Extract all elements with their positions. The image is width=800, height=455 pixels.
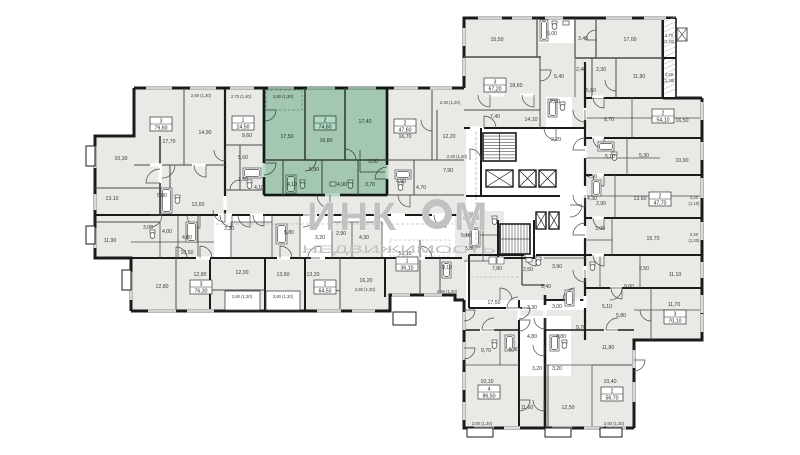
svg-text:11,90: 11,90 [104, 238, 117, 244]
svg-text:10,90: 10,90 [676, 158, 689, 164]
svg-text:64,50: 64,50 [319, 289, 332, 295]
svg-text:3,00: 3,00 [143, 225, 153, 231]
svg-text:12,50: 12,50 [562, 405, 575, 411]
svg-text:2,60 (1,30): 2,60 (1,30) [191, 93, 212, 98]
svg-text:17,70: 17,70 [163, 139, 176, 145]
svg-text:НЕДВИЖИМОСТЬ: НЕДВИЖИМОСТЬ [302, 244, 496, 256]
svg-text:13,60: 13,60 [277, 272, 290, 278]
svg-text:14,90: 14,90 [199, 130, 212, 136]
svg-text:12,60: 12,60 [192, 202, 205, 208]
svg-text:9,60: 9,60 [242, 133, 252, 139]
svg-text:3,30: 3,30 [527, 305, 537, 311]
svg-text:11,90: 11,90 [633, 74, 646, 80]
svg-text:16,20: 16,20 [360, 278, 373, 284]
svg-text:4,80: 4,80 [556, 334, 566, 340]
svg-text:24,50: 24,50 [237, 125, 250, 131]
svg-text:3,20: 3,20 [552, 366, 562, 372]
svg-text:2,70: 2,70 [665, 33, 674, 38]
svg-text:3,00: 3,00 [552, 304, 562, 310]
svg-text:4,80: 4,80 [527, 334, 537, 340]
svg-text:3,20: 3,20 [532, 366, 542, 372]
svg-text:5,40: 5,40 [541, 284, 551, 290]
svg-text:4,70: 4,70 [416, 185, 426, 191]
svg-text:3,00: 3,00 [595, 226, 605, 232]
svg-text:2,20: 2,20 [690, 195, 699, 200]
svg-text:5,40: 5,40 [554, 74, 564, 80]
svg-text:ИНК: ИНК [307, 195, 400, 239]
svg-text:9,10: 9,10 [442, 265, 452, 271]
svg-text:2,50 (1,30): 2,50 (1,30) [472, 421, 493, 426]
svg-text:4,00: 4,00 [162, 229, 172, 235]
svg-text:10,40: 10,40 [604, 379, 617, 385]
svg-text:10,10: 10,10 [481, 379, 494, 385]
svg-text:5,30: 5,30 [639, 153, 649, 159]
svg-text:2,30: 2,30 [596, 67, 606, 73]
svg-text:86,50: 86,50 [483, 394, 496, 400]
svg-text:54,10: 54,10 [657, 118, 670, 124]
svg-text:М: М [454, 195, 487, 239]
svg-text:2,50: 2,50 [523, 267, 533, 273]
svg-text:2,50: 2,50 [639, 266, 649, 272]
svg-text:13,10: 13,10 [106, 196, 119, 202]
svg-text:2,40 (1,20): 2,40 (1,20) [437, 289, 458, 294]
svg-text:2,50: 2,50 [665, 72, 674, 77]
svg-text:7,80: 7,80 [492, 266, 502, 272]
svg-text:3,40: 3,40 [578, 36, 588, 42]
svg-text:12,20: 12,20 [443, 134, 456, 140]
svg-text:2: 2 [324, 281, 327, 287]
svg-text:(1,40): (1,40) [664, 39, 676, 44]
svg-text:7,40: 7,40 [490, 114, 500, 120]
svg-text:12,80: 12,80 [156, 284, 169, 290]
svg-text:1: 1 [242, 117, 245, 123]
svg-text:2,60 (1,30): 2,60 (1,30) [355, 287, 376, 292]
svg-text:5,80: 5,80 [616, 313, 626, 319]
svg-text:47,70: 47,70 [654, 201, 667, 207]
svg-text:5,60: 5,60 [586, 88, 596, 94]
svg-text:2,70 (1,40): 2,70 (1,40) [231, 94, 252, 99]
svg-text:1: 1 [406, 258, 409, 264]
svg-text:12,80: 12,80 [194, 272, 207, 278]
svg-text:9,70: 9,70 [481, 348, 491, 354]
svg-text:10,30: 10,30 [115, 156, 128, 162]
svg-text:2: 2 [662, 110, 665, 116]
svg-text:4,80: 4,80 [182, 235, 192, 241]
svg-text:3,20: 3,20 [224, 226, 234, 232]
svg-text:2,90: 2,90 [596, 201, 606, 207]
svg-text:2,60 (1,30): 2,60 (1,30) [232, 294, 253, 299]
svg-text:3,80: 3,80 [238, 177, 248, 183]
svg-text:12,00: 12,00 [236, 270, 249, 276]
svg-text:76,30: 76,30 [195, 289, 208, 295]
svg-text:5,60: 5,60 [238, 155, 248, 161]
svg-text:2: 2 [404, 120, 407, 126]
svg-text:3,90: 3,90 [552, 264, 562, 270]
svg-text:5,10: 5,10 [602, 304, 612, 310]
svg-text:2,60: 2,60 [550, 99, 560, 105]
svg-text:11,10: 11,10 [669, 272, 682, 278]
svg-text:11,70: 11,70 [668, 302, 681, 308]
svg-text:2,40: 2,40 [576, 67, 586, 73]
svg-text:3: 3 [674, 311, 677, 317]
svg-text:5,80: 5,80 [157, 193, 167, 199]
svg-text:17,50: 17,50 [488, 300, 501, 306]
svg-text:2,50 (1,30): 2,50 (1,30) [604, 421, 625, 426]
svg-text:13,60: 13,60 [634, 196, 647, 202]
svg-text:11,60: 11,60 [521, 405, 534, 411]
svg-text:79,60: 79,60 [155, 126, 168, 132]
svg-text:2: 2 [611, 388, 614, 394]
svg-text:17,00: 17,00 [624, 37, 637, 43]
svg-text:10,50: 10,50 [181, 250, 194, 256]
svg-text:4,90: 4,90 [396, 179, 406, 185]
svg-text:2,40 (1,20): 2,40 (1,20) [447, 154, 468, 159]
svg-text:5,80: 5,80 [284, 230, 294, 236]
svg-text:5,40: 5,40 [509, 347, 519, 353]
svg-text:56,70: 56,70 [606, 396, 619, 402]
svg-text:(1,20): (1,20) [689, 238, 701, 243]
svg-text:(1,10): (1,10) [689, 201, 701, 206]
svg-text:2,20: 2,20 [551, 137, 561, 143]
svg-text:16,70: 16,70 [399, 134, 412, 140]
svg-text:13,20: 13,20 [307, 272, 320, 278]
svg-text:67,20: 67,20 [489, 87, 502, 93]
svg-text:18,60: 18,60 [510, 83, 523, 89]
svg-text:2,40: 2,40 [690, 232, 699, 237]
svg-text:14,10: 14,10 [525, 117, 538, 123]
svg-text:15,70: 15,70 [647, 236, 660, 242]
svg-text:8,70: 8,70 [604, 117, 614, 123]
svg-text:5,10: 5,10 [605, 154, 615, 160]
svg-text:16,50: 16,50 [676, 118, 689, 124]
svg-text:15,50: 15,50 [491, 37, 504, 43]
svg-text:4,50: 4,50 [587, 174, 597, 180]
svg-text:4: 4 [488, 386, 491, 392]
svg-text:70,10: 70,10 [669, 319, 682, 325]
svg-text:5,00: 5,00 [547, 31, 557, 37]
svg-text:11,80: 11,80 [602, 345, 615, 351]
svg-text:3: 3 [200, 281, 203, 287]
svg-text:2,40 (1,20): 2,40 (1,20) [440, 100, 461, 105]
svg-text:3: 3 [494, 79, 497, 85]
svg-text:2,60 (1,30): 2,60 (1,30) [273, 294, 294, 299]
svg-text:3: 3 [160, 118, 163, 124]
svg-text:2: 2 [659, 193, 662, 199]
svg-text:47,60: 47,60 [399, 128, 412, 134]
svg-text:9,70: 9,70 [576, 325, 586, 331]
svg-text:7,90: 7,90 [443, 168, 453, 174]
svg-text:36,10: 36,10 [401, 266, 414, 272]
svg-text:(1,30): (1,30) [664, 78, 676, 83]
svg-text:9,60: 9,60 [624, 284, 634, 290]
